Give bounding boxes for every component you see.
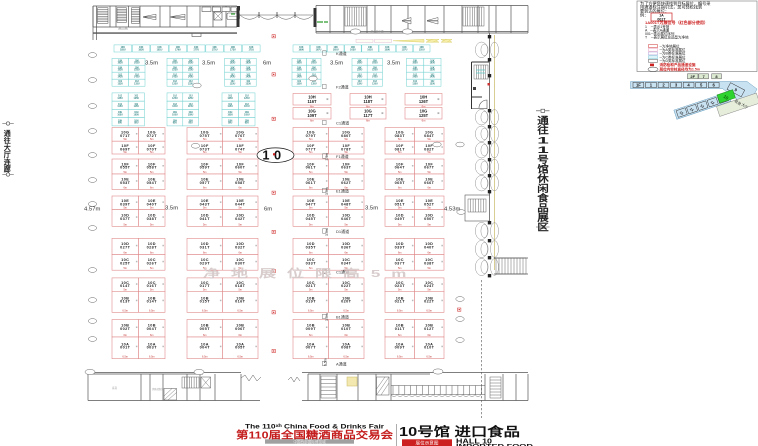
svg-text:3.5m: 3.5m bbox=[365, 206, 378, 212]
svg-text:5m: 5m bbox=[427, 171, 430, 174]
svg-text:009T: 009T bbox=[395, 346, 406, 350]
svg-text:109T: 109T bbox=[307, 113, 317, 118]
svg-text:181U: 181U bbox=[157, 48, 163, 51]
svg-text:125U: 125U bbox=[172, 98, 178, 100]
svg-text:155U: 155U bbox=[357, 70, 363, 72]
svg-text:153U: 153U bbox=[246, 70, 252, 72]
svg-text:一层连廊平面: 一层连廊平面 bbox=[368, 30, 384, 34]
svg-text:3.5m: 3.5m bbox=[325, 228, 329, 236]
svg-text:009T: 009T bbox=[306, 327, 317, 331]
svg-text:075T: 075T bbox=[200, 134, 211, 138]
svg-text:6m: 6m bbox=[150, 187, 153, 190]
svg-text:013T: 013T bbox=[120, 300, 131, 304]
svg-text:173U: 173U bbox=[230, 48, 236, 51]
svg-text:6.5m: 6.5m bbox=[122, 356, 128, 359]
svg-text:177U: 177U bbox=[193, 48, 199, 51]
svg-text:5m: 5m bbox=[123, 138, 126, 141]
svg-text:5m: 5m bbox=[398, 151, 401, 154]
svg-text:6m: 6m bbox=[203, 252, 206, 255]
svg-text:004T: 004T bbox=[147, 327, 158, 331]
svg-text:057T: 057T bbox=[200, 181, 211, 185]
svg-text:163U: 163U bbox=[188, 63, 194, 65]
svg-text:E1通道: E1通道 bbox=[336, 188, 349, 194]
svg-text:5m: 5m bbox=[309, 171, 312, 174]
svg-text:往: 往 bbox=[4, 136, 11, 145]
svg-text:165U: 165U bbox=[430, 63, 436, 65]
svg-text:展位示意图: 展位示意图 bbox=[416, 440, 439, 446]
svg-text:3.5m: 3.5m bbox=[325, 187, 329, 195]
svg-text:5m: 5m bbox=[427, 207, 430, 210]
svg-text:143U: 143U bbox=[188, 76, 194, 79]
svg-text:163U: 163U bbox=[117, 63, 123, 65]
svg-text:145U: 145U bbox=[357, 76, 363, 79]
svg-text:039T: 039T bbox=[395, 245, 406, 249]
svg-text:153U: 153U bbox=[134, 70, 140, 72]
svg-text:155U: 155U bbox=[419, 48, 425, 51]
svg-text:143U: 143U bbox=[117, 76, 123, 79]
svg-text:3.5m: 3.5m bbox=[387, 61, 400, 67]
svg-text:5m: 5m bbox=[150, 207, 153, 210]
svg-text:6.5m: 6.5m bbox=[122, 309, 128, 312]
svg-text:080T: 080T bbox=[341, 134, 352, 138]
svg-text:6m: 6m bbox=[427, 187, 430, 190]
svg-text:3.5m: 3.5m bbox=[330, 61, 343, 67]
svg-text:115U: 115U bbox=[228, 106, 234, 108]
svg-text:036T: 036T bbox=[341, 245, 352, 249]
svg-text:5m: 5m bbox=[123, 223, 126, 226]
svg-text:5m: 5m bbox=[309, 138, 312, 141]
svg-text:105U: 105U bbox=[134, 114, 140, 116]
svg-text:3.5m: 3.5m bbox=[325, 313, 329, 321]
svg-text:161U: 161U bbox=[367, 48, 373, 51]
svg-text:016T: 016T bbox=[235, 300, 246, 304]
svg-text:028T: 028T bbox=[147, 245, 158, 249]
svg-text:015T: 015T bbox=[200, 300, 211, 304]
svg-text:5m: 5m bbox=[150, 138, 153, 141]
svg-text:通: 通 bbox=[4, 129, 12, 138]
svg-text:5m: 5m bbox=[398, 207, 401, 210]
svg-text:6.5m: 6.5m bbox=[237, 356, 243, 359]
svg-text:6.5m: 6.5m bbox=[343, 356, 349, 359]
svg-text:95U: 95U bbox=[134, 123, 139, 125]
svg-text:5m: 5m bbox=[150, 171, 153, 174]
svg-text:5m: 5m bbox=[427, 151, 430, 154]
svg-text:060T: 060T bbox=[235, 166, 246, 170]
svg-text:5m: 5m bbox=[344, 223, 347, 226]
svg-text:5m: 5m bbox=[309, 207, 312, 210]
svg-text:5m: 5m bbox=[238, 151, 241, 154]
svg-text:6m: 6m bbox=[150, 252, 153, 255]
svg-text:5m: 5m bbox=[203, 207, 206, 210]
svg-text:185U: 185U bbox=[120, 48, 126, 51]
svg-text:3.5m: 3.5m bbox=[145, 61, 158, 67]
svg-text:007T: 007T bbox=[306, 346, 317, 350]
svg-text:084T: 084T bbox=[424, 134, 435, 138]
svg-text:179U: 179U bbox=[175, 48, 181, 51]
svg-text:011T: 011T bbox=[395, 327, 405, 331]
svg-text:118T: 118T bbox=[363, 99, 373, 104]
svg-text:5m: 5m bbox=[238, 223, 241, 226]
svg-text:连: 连 bbox=[4, 157, 12, 166]
svg-text:153U: 153U bbox=[172, 70, 178, 72]
svg-text:6.5m: 6.5m bbox=[202, 309, 208, 312]
svg-text:5m: 5m bbox=[427, 288, 430, 291]
svg-text:002T: 002T bbox=[120, 327, 131, 331]
svg-text:050T: 050T bbox=[424, 217, 435, 221]
svg-text:105U: 105U bbox=[188, 114, 194, 116]
svg-text:029T: 029T bbox=[200, 261, 211, 265]
svg-text:155U: 155U bbox=[372, 70, 378, 72]
svg-text:163U: 163U bbox=[230, 63, 236, 65]
svg-text:115U: 115U bbox=[117, 106, 123, 108]
svg-text:014T: 014T bbox=[147, 300, 158, 304]
svg-text:035T: 035T bbox=[306, 245, 317, 249]
svg-text:064T: 064T bbox=[395, 166, 406, 170]
svg-text:6m: 6m bbox=[203, 334, 206, 337]
svg-text:163U: 163U bbox=[134, 63, 140, 65]
svg-text:005T: 005T bbox=[200, 327, 211, 331]
svg-text:125U: 125U bbox=[188, 98, 194, 100]
svg-text:5m: 5m bbox=[309, 288, 312, 291]
svg-text:5m: 5m bbox=[203, 171, 206, 174]
svg-text:厅: 厅 bbox=[4, 151, 11, 159]
svg-text:5m: 5m bbox=[203, 138, 206, 141]
svg-text:6m: 6m bbox=[238, 252, 241, 255]
svg-text:115U: 115U bbox=[244, 106, 250, 108]
svg-text:155U: 155U bbox=[311, 70, 317, 72]
svg-text:053T: 053T bbox=[120, 181, 131, 185]
svg-text:165U: 165U bbox=[311, 63, 317, 65]
svg-text:046T: 046T bbox=[341, 217, 352, 221]
svg-text:165U: 165U bbox=[296, 63, 302, 65]
svg-text:175U: 175U bbox=[212, 48, 218, 51]
svg-text:153U: 153U bbox=[230, 70, 236, 72]
svg-text:5m: 5m bbox=[427, 223, 430, 226]
svg-text:95U: 95U bbox=[228, 123, 233, 125]
svg-text:133U: 133U bbox=[246, 84, 252, 86]
svg-text:5m: 5m bbox=[238, 288, 241, 291]
svg-text:K通道: K通道 bbox=[336, 50, 347, 56]
svg-text:031T: 031T bbox=[200, 245, 211, 249]
svg-text:010T: 010T bbox=[341, 327, 352, 331]
svg-text:5m: 5m bbox=[238, 138, 241, 141]
svg-text:6m: 6m bbox=[238, 187, 241, 190]
svg-text:049T: 049T bbox=[395, 217, 406, 221]
svg-text:163U: 163U bbox=[172, 63, 178, 65]
svg-text:058T: 058T bbox=[235, 181, 246, 185]
svg-text:125U: 125U bbox=[227, 98, 233, 100]
svg-text:6.5m: 6.5m bbox=[397, 356, 403, 359]
svg-text:95U: 95U bbox=[245, 123, 250, 125]
svg-text:033T: 033T bbox=[306, 261, 317, 265]
svg-text:055T: 055T bbox=[120, 166, 131, 170]
svg-text:6m: 6m bbox=[398, 334, 401, 337]
svg-text:183U: 183U bbox=[138, 48, 144, 51]
svg-text:例：: 例： bbox=[640, 11, 648, 17]
svg-text:95U: 95U bbox=[118, 123, 123, 125]
svg-text:6m: 6m bbox=[398, 252, 401, 255]
svg-text:5m: 5m bbox=[123, 171, 126, 174]
svg-text:006T: 006T bbox=[235, 327, 246, 331]
svg-text:153U: 153U bbox=[117, 70, 123, 72]
svg-text:B1通道: B1通道 bbox=[336, 314, 349, 320]
svg-text:145U: 145U bbox=[372, 76, 378, 79]
svg-text:012T: 012T bbox=[424, 327, 435, 331]
svg-text:库房: 库房 bbox=[112, 386, 118, 390]
svg-text:079T: 079T bbox=[306, 134, 317, 138]
svg-text:153U: 153U bbox=[188, 70, 194, 72]
svg-text:058T: 058T bbox=[147, 166, 158, 170]
svg-text:6m: 6m bbox=[427, 252, 430, 255]
svg-text:6.5m: 6.5m bbox=[149, 309, 155, 312]
svg-text:5m: 5m bbox=[123, 207, 126, 210]
svg-text:135U: 135U bbox=[357, 84, 363, 86]
svg-text:115U: 115U bbox=[188, 106, 194, 108]
svg-text:5m: 5m bbox=[150, 267, 153, 270]
svg-text:042T: 042T bbox=[235, 217, 246, 221]
svg-text:133U: 133U bbox=[134, 84, 140, 86]
svg-text:115U: 115U bbox=[172, 106, 178, 108]
svg-text:133U: 133U bbox=[172, 84, 178, 86]
svg-text:5m: 5m bbox=[238, 207, 241, 210]
svg-text:034T: 034T bbox=[341, 261, 352, 265]
svg-text:135U: 135U bbox=[311, 84, 317, 86]
svg-text:6.5m: 6.5m bbox=[308, 356, 314, 359]
svg-text:135U: 135U bbox=[296, 84, 302, 86]
svg-text:C1通道: C1通道 bbox=[336, 120, 349, 126]
svg-text:010T: 010T bbox=[424, 346, 435, 350]
svg-text:6.5m: 6.5m bbox=[426, 309, 432, 312]
svg-text:中国西部国际博览城: 中国西部国际博览城 bbox=[293, 439, 326, 444]
svg-text:5m: 5m bbox=[309, 151, 312, 154]
svg-text:169U: 169U bbox=[298, 48, 304, 51]
svg-text:5m: 5m bbox=[150, 223, 153, 226]
svg-text:廊: 廊 bbox=[4, 164, 11, 173]
svg-text:6.5m: 6.5m bbox=[202, 356, 208, 359]
svg-text:143U: 143U bbox=[172, 76, 178, 79]
svg-text:054T: 054T bbox=[147, 181, 158, 185]
svg-text:027T: 027T bbox=[120, 245, 131, 249]
svg-text:5m: 5m bbox=[398, 171, 401, 174]
svg-text:3.5m: 3.5m bbox=[165, 206, 178, 212]
svg-text:6.5m: 6.5m bbox=[397, 309, 403, 312]
svg-text:105U: 105U bbox=[172, 114, 178, 116]
svg-text:6.5m: 6.5m bbox=[149, 356, 155, 359]
svg-text:5m: 5m bbox=[150, 288, 153, 291]
svg-text:5m: 5m bbox=[398, 138, 401, 141]
svg-text:145U: 145U bbox=[412, 76, 418, 79]
svg-text:116T: 116T bbox=[307, 99, 317, 104]
svg-text:143U: 143U bbox=[230, 76, 236, 79]
svg-text:165U: 165U bbox=[357, 63, 363, 65]
svg-text:6m: 6m bbox=[309, 252, 312, 255]
svg-text:6m: 6m bbox=[398, 187, 401, 190]
svg-text:6.5m: 6.5m bbox=[237, 309, 243, 312]
svg-text:117T: 117T bbox=[363, 113, 373, 118]
svg-text:066T: 066T bbox=[424, 181, 435, 185]
svg-text:171U: 171U bbox=[248, 48, 254, 51]
svg-text:045T: 045T bbox=[306, 217, 317, 221]
svg-text:6m: 6m bbox=[203, 187, 206, 190]
svg-text:6m: 6m bbox=[309, 334, 312, 337]
svg-text:105U: 105U bbox=[244, 114, 250, 116]
svg-text:020T: 020T bbox=[341, 300, 352, 304]
svg-text:021T: 021T bbox=[395, 300, 406, 304]
svg-text:1F: 1F bbox=[636, 83, 641, 88]
svg-text:145U: 145U bbox=[296, 76, 302, 79]
svg-text:5m: 5m bbox=[123, 151, 126, 154]
svg-text:135U: 135U bbox=[372, 84, 378, 86]
svg-text:155U: 155U bbox=[412, 70, 418, 72]
svg-text:062T: 062T bbox=[341, 181, 352, 185]
svg-text:5m: 5m bbox=[150, 151, 153, 154]
svg-text:105U: 105U bbox=[227, 114, 233, 116]
svg-text:038T: 038T bbox=[147, 217, 158, 221]
svg-text:165U: 165U bbox=[372, 63, 378, 65]
svg-text:115U: 115U bbox=[134, 106, 140, 108]
svg-text:6.5m: 6.5m bbox=[343, 309, 349, 312]
svg-text:167U: 167U bbox=[316, 48, 322, 51]
svg-text:6m: 6m bbox=[427, 334, 430, 337]
svg-text:5m: 5m bbox=[123, 288, 126, 291]
svg-text:065T: 065T bbox=[395, 181, 406, 185]
svg-text:155U: 155U bbox=[430, 70, 436, 72]
svg-text:038T: 038T bbox=[424, 261, 435, 265]
svg-text:133U: 133U bbox=[117, 84, 123, 86]
svg-text:032T: 032T bbox=[235, 245, 246, 249]
svg-text:041T: 041T bbox=[200, 217, 211, 221]
svg-text:040T: 040T bbox=[424, 245, 435, 249]
svg-text:072T: 072T bbox=[147, 134, 158, 138]
svg-text:The 110ˣʰ China Food & Drinks: The 110ˣʰ China Food & Drinks Fair bbox=[245, 424, 385, 431]
svg-text:143U: 143U bbox=[246, 76, 252, 79]
svg-text:5m: 5m bbox=[344, 207, 347, 210]
svg-text:5m: 5m bbox=[398, 223, 401, 226]
svg-text:157U: 157U bbox=[402, 48, 408, 51]
svg-text:5m: 5m bbox=[344, 171, 347, 174]
svg-text:061T: 061T bbox=[306, 181, 317, 185]
svg-text:4.53m: 4.53m bbox=[444, 207, 460, 213]
svg-text:3.5m: 3.5m bbox=[325, 153, 329, 161]
svg-text:展位内空柱直径均为1.5m: 展位内空柱直径均为1.5m bbox=[660, 66, 701, 71]
svg-text:D1通道: D1通道 bbox=[336, 228, 349, 234]
svg-text:6.5m: 6.5m bbox=[426, 356, 432, 359]
svg-text:145U: 145U bbox=[430, 76, 436, 79]
svg-text:95U: 95U bbox=[173, 123, 178, 125]
svg-text:004T: 004T bbox=[200, 346, 211, 350]
svg-text:A通道: A通道 bbox=[336, 361, 347, 367]
svg-text:022T: 022T bbox=[424, 300, 435, 304]
svg-text:2F: 2F bbox=[690, 74, 695, 79]
svg-text:030T: 030T bbox=[235, 261, 246, 265]
svg-text:5m: 5m bbox=[123, 267, 126, 270]
svg-text:6m: 6m bbox=[264, 207, 272, 213]
svg-text:区: 区 bbox=[537, 223, 549, 234]
svg-text:6m: 6m bbox=[123, 334, 126, 337]
svg-text:126T: 126T bbox=[419, 99, 429, 104]
svg-text:F2通道: F2通道 bbox=[336, 84, 349, 90]
svg-text:125T: 125T bbox=[419, 113, 429, 118]
svg-text:6m: 6m bbox=[123, 187, 126, 190]
svg-text:159U: 159U bbox=[384, 48, 390, 51]
svg-text:6m: 6m bbox=[263, 61, 271, 67]
svg-text:067T: 067T bbox=[424, 166, 435, 170]
svg-text:5m: 5m bbox=[427, 267, 430, 270]
svg-text:105U: 105U bbox=[117, 114, 123, 116]
svg-text:6.5m: 6.5m bbox=[324, 358, 328, 366]
svg-text:003T: 003T bbox=[147, 346, 158, 350]
svg-text:5m: 5m bbox=[427, 138, 430, 141]
svg-text:5m: 5m bbox=[344, 288, 347, 291]
svg-text:005T: 005T bbox=[235, 346, 246, 350]
svg-text:6m: 6m bbox=[150, 334, 153, 337]
svg-text:163U: 163U bbox=[350, 48, 356, 51]
svg-text:5m: 5m bbox=[309, 223, 312, 226]
svg-text:5m: 5m bbox=[203, 151, 206, 154]
svg-text:F1通道: F1通道 bbox=[336, 153, 349, 159]
svg-text:3.5m: 3.5m bbox=[202, 61, 215, 67]
svg-text:019T: 019T bbox=[306, 300, 317, 304]
svg-text:001T: 001T bbox=[120, 346, 131, 350]
svg-text:6m: 6m bbox=[123, 252, 126, 255]
svg-text:071T: 071T bbox=[120, 134, 131, 138]
svg-text:6m: 6m bbox=[238, 334, 241, 337]
svg-text:008T: 008T bbox=[341, 346, 352, 350]
svg-text:净地展位限高5m: 净地展位限高5m bbox=[203, 267, 417, 279]
svg-text:6.5m: 6.5m bbox=[308, 309, 314, 312]
svg-text:061T: 061T bbox=[306, 166, 317, 170]
svg-text:037T: 037T bbox=[395, 261, 406, 265]
svg-text:6m: 6m bbox=[309, 187, 312, 190]
svg-text:4.57m: 4.57m bbox=[84, 207, 100, 213]
svg-text:165U: 165U bbox=[412, 63, 418, 65]
svg-text:5m: 5m bbox=[344, 138, 347, 141]
svg-text:T ─表示展位总品型为净地: T ─表示展位总品型为净地 bbox=[645, 35, 689, 40]
svg-text:125U: 125U bbox=[134, 98, 140, 100]
svg-text:083T: 083T bbox=[395, 134, 406, 138]
svg-text:大: 大 bbox=[4, 143, 11, 152]
svg-text:95U: 95U bbox=[188, 123, 193, 125]
svg-text:消防控制室: 消防控制室 bbox=[152, 387, 165, 391]
svg-text:076T: 076T bbox=[235, 134, 246, 138]
svg-text:125U: 125U bbox=[117, 98, 123, 100]
svg-text:6m: 6m bbox=[344, 252, 347, 255]
svg-text:135U: 135U bbox=[412, 84, 418, 86]
svg-text:5m: 5m bbox=[203, 223, 206, 226]
svg-text:133U: 133U bbox=[230, 84, 236, 86]
svg-text:026T: 026T bbox=[147, 261, 158, 265]
svg-text:6m: 6m bbox=[344, 334, 347, 337]
svg-text:025T: 025T bbox=[120, 261, 131, 265]
svg-text:125U: 125U bbox=[244, 98, 250, 100]
svg-text:037T: 037T bbox=[120, 217, 131, 221]
svg-text:5m: 5m bbox=[203, 288, 206, 291]
svg-text:063T: 063T bbox=[341, 166, 352, 170]
svg-text:059T: 059T bbox=[200, 166, 211, 170]
svg-text:143U: 143U bbox=[134, 76, 140, 79]
svg-text:135U: 135U bbox=[430, 84, 436, 86]
svg-text:5m: 5m bbox=[398, 288, 401, 291]
svg-text:155U: 155U bbox=[296, 70, 302, 72]
svg-text:5m: 5m bbox=[238, 171, 241, 174]
svg-text:163U: 163U bbox=[246, 63, 252, 65]
